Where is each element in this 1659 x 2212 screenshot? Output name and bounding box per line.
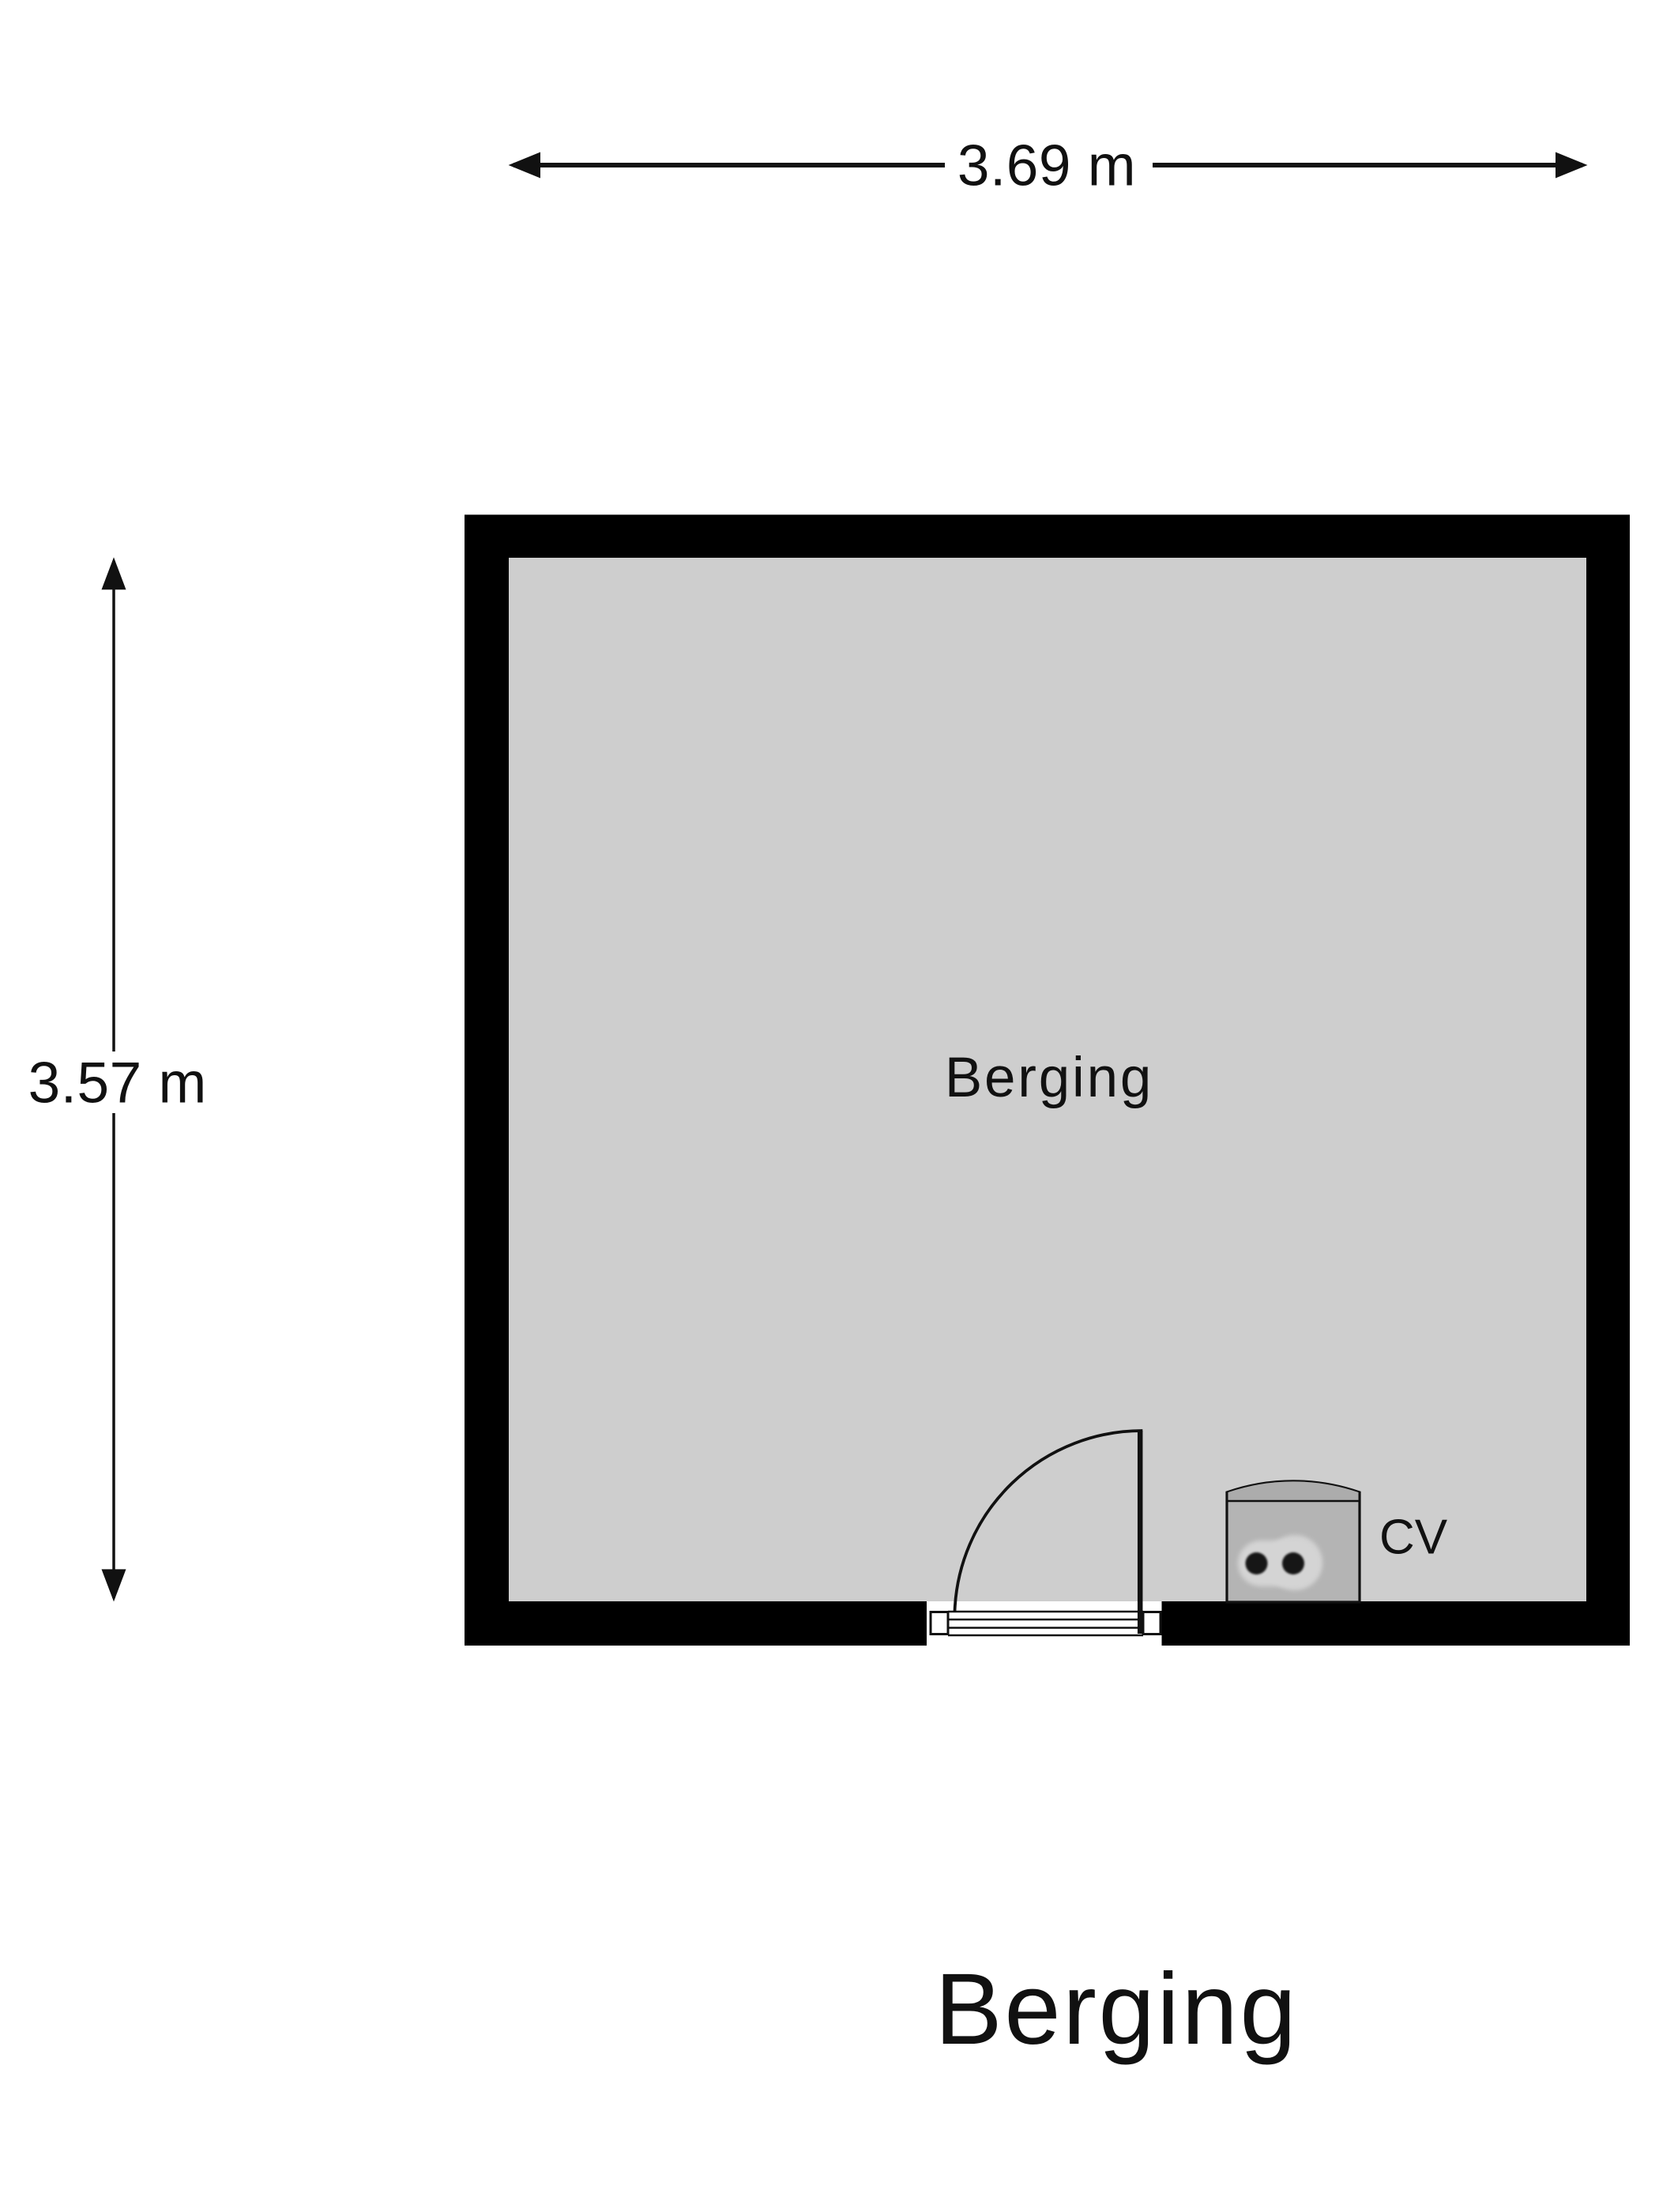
svg-text:3.69 m: 3.69 m (957, 134, 1136, 198)
svg-text:Berging: Berging (945, 1047, 1153, 1109)
svg-text:CV: CV (1379, 1510, 1448, 1565)
svg-text:3.57 m: 3.57 m (28, 1051, 207, 1115)
svg-text:Berging: Berging (935, 1953, 1298, 2066)
